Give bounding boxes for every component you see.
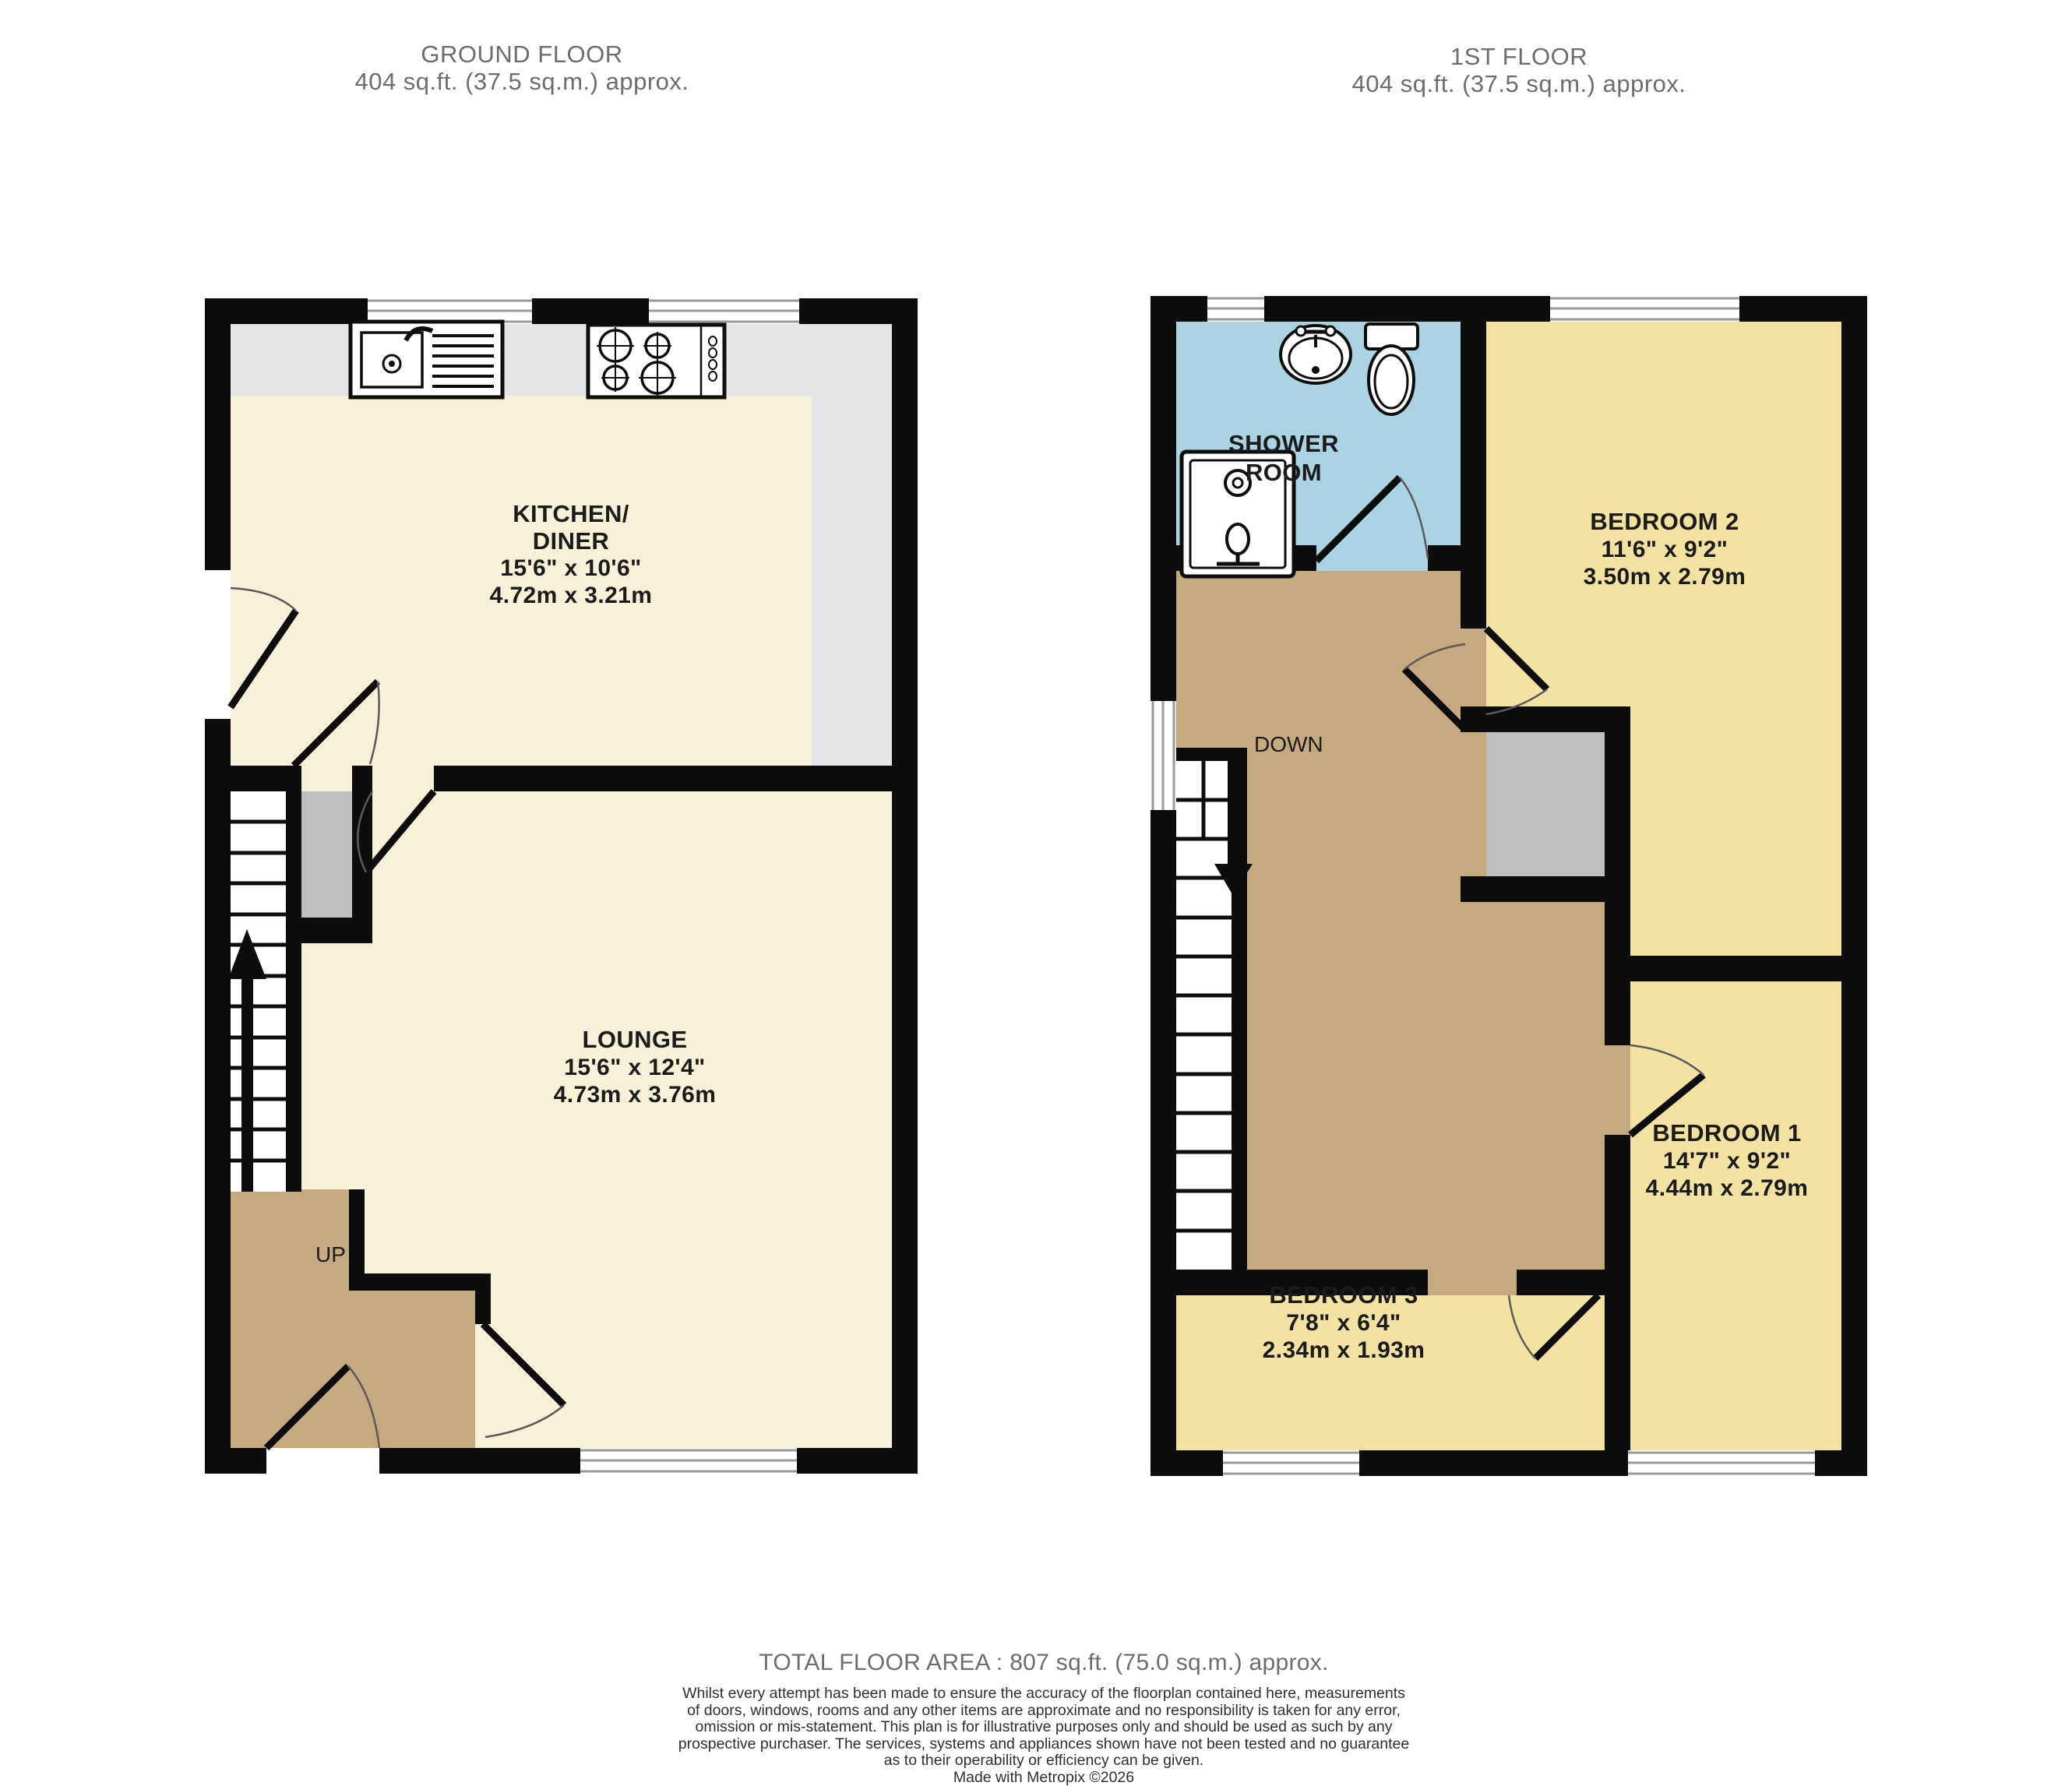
up-label: UP [315,1242,346,1266]
stair-wall [1232,748,1247,1270]
landing-cupboard [1486,732,1605,876]
bedroom1-window [1628,1450,1815,1476]
toilet-icon [1365,324,1418,414]
bedroom1-label: BEDROOM 1 14'7" x 9'2" 4.44m x 2.79m [1646,1119,1809,1201]
kitchen-window-right [649,298,799,324]
bedroom2-dims-imperial: 11'6" x 9'2" [1602,537,1728,562]
disclaimer-line-2: of doors, windows, rooms and any other i… [537,1703,1550,1720]
first-floor-subtitle: 404 sq.ft. (37.5 sq.m.) approx. [1207,70,1831,97]
bedroom3-name: BEDROOM 3 [1269,1281,1418,1309]
disclaimer-line-5: as to their operability or efficiency ca… [537,1753,1550,1770]
stair-wall [286,766,301,1192]
first-floor-title-line: 1ST FLOOR [1207,43,1831,70]
ground-floor-subtitle: 404 sq.ft. (37.5 sq.m.) approx. [210,68,833,95]
lounge-dims-metric: 4.73m x 3.76m [554,1082,717,1108]
disclaimer-line-1: Whilst every attempt has been made to en… [537,1686,1550,1703]
basin-icon [1281,326,1351,383]
total-floor-area: TOTAL FLOOR AREA : 807 sq.ft. (75.0 sq.m… [537,1650,1550,1676]
bedroom2-window [1550,296,1739,322]
metropix-credit: Made with Metropix ©2026 [537,1770,1550,1786]
bedroom1-dims-metric: 4.44m x 2.79m [1646,1175,1809,1201]
bedroom3-window [1223,1450,1359,1476]
bedroom2-label: BEDROOM 2 11'6" x 9'2" 3.50m x 2.79m [1584,508,1746,590]
shower-room-name-1: SHOWER [1228,430,1339,457]
understairs-cupboard [301,791,352,918]
kitchen-counter-right [812,324,892,766]
staircase-up [228,791,286,1192]
bedroom3-dims-metric: 2.34m x 1.93m [1263,1337,1425,1363]
lounge-window [580,1448,797,1474]
kitchen-sink-icon [351,322,502,397]
shower-room-name-2: ROOM [1246,459,1322,486]
lounge-dims-imperial: 15'6" x 12'4" [564,1055,705,1080]
bedroom1-dims-imperial: 14'7" x 9'2" [1663,1148,1791,1174]
bedroom2-dims-metric: 3.50m x 2.79m [1584,564,1746,590]
kitchen-name-2: DINER [533,527,609,555]
disclaimer-line-3: omission or mis-statement. This plan is … [537,1719,1550,1736]
bedroom3-label: BEDROOM 3 7'8" x 6'4" 2.34m x 1.93m [1263,1281,1425,1363]
bedroom3-dims-imperial: 7'8" x 6'4" [1286,1310,1401,1336]
footer: TOTAL FLOOR AREA : 807 sq.ft. (75.0 sq.m… [537,1650,1550,1786]
bedroom2-name: BEDROOM 2 [1590,508,1739,535]
ground-floor-title: GROUND FLOOR 404 sq.ft. (37.5 sq.m.) app… [210,41,833,95]
kitchen-counter-top [231,324,892,396]
lounge-name: LOUNGE [582,1026,687,1053]
landing-window [1151,701,1176,810]
down-label: DOWN [1254,732,1323,756]
kitchen-dims-metric: 4.72m x 3.21m [490,583,653,608]
disclaimer-line-4: prospective purchaser. The services, sys… [537,1736,1550,1753]
ground-floor-title-line: GROUND FLOOR [210,41,833,68]
shower-room-window [1207,296,1264,322]
first-floor-title: 1ST FLOOR 404 sq.ft. (37.5 sq.m.) approx… [1207,43,1831,97]
first-floor-plan: SHOWER ROOM BEDROOM 2 11'6" x 9'2" 3.50m… [1151,296,1867,1476]
kitchen-dims-imperial: 15'6" x 10'6" [500,555,641,581]
ground-floor-plan: KITCHEN/ DINER 15'6" x 10'6" 4.72m x 3.2… [205,298,918,1474]
kitchen-name-1: KITCHEN/ [513,500,629,527]
hob-icon [588,325,724,397]
bedroom1-name: BEDROOM 1 [1652,1119,1801,1147]
